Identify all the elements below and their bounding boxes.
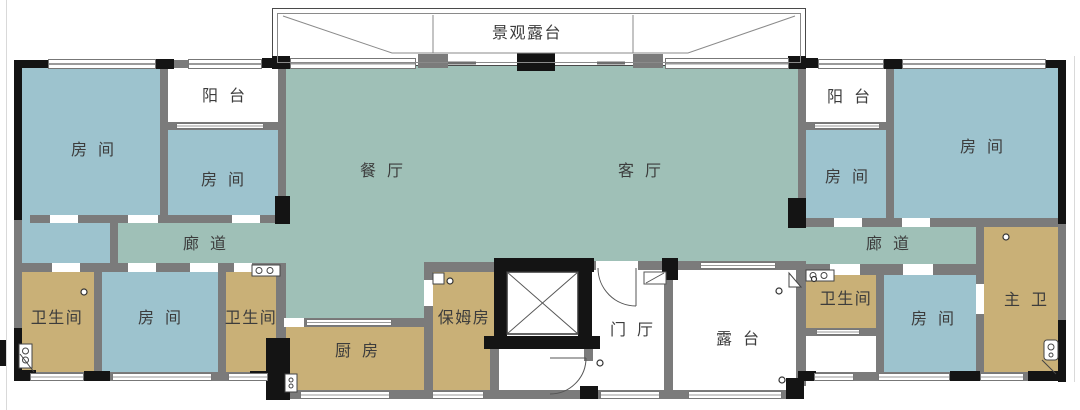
floor-plan: 景观露台 阳台 房间 房间 餐厅 客厅 廊道 卫生间 房间 卫生间 厨房 保姆房… — [0, 0, 1080, 410]
room-label-corridor-right: 廊道 — [866, 236, 920, 252]
room-label-bedroom-right-small: 房间 — [825, 169, 879, 185]
room-label-master-bathroom: 主卫 — [1004, 292, 1058, 308]
toilet-icon — [1042, 340, 1058, 374]
elevator-shaft-icon — [507, 272, 578, 334]
door-arc — [550, 358, 586, 394]
sink-icon — [252, 265, 280, 276]
sink-icon — [806, 270, 834, 281]
room-label-bathroom-left: 卫生间 — [31, 310, 84, 326]
room-label-balcony-left: 阳台 — [202, 88, 256, 104]
shower-corner-icon — [433, 273, 801, 287]
room-label-scenic-terrace: 景观露台 — [492, 25, 562, 41]
door-arc — [598, 268, 636, 306]
room-label-living: 客厅 — [618, 163, 672, 179]
room-label-bathroom-right: 卫生间 — [820, 291, 873, 307]
room-label-bedroom-left-small: 房间 — [201, 172, 255, 188]
kitchen-fixture-icon — [285, 374, 297, 392]
room-label-terrace: 露台 — [716, 331, 770, 347]
room-label-entry-hall: 门厅 — [610, 322, 664, 338]
room-label-bedroom-right-large: 房间 — [960, 139, 1014, 155]
room-label-bedroom-bottom-left: 房间 — [138, 310, 192, 326]
room-label-bathroom-left-2: 卫生间 — [225, 310, 278, 326]
entry-closet-icon — [644, 272, 666, 284]
room-label-corridor-left: 廊道 — [183, 236, 237, 252]
room-label-dining: 餐厅 — [360, 163, 414, 179]
room-label-nanny-room: 保姆房 — [438, 310, 491, 326]
plan-detail-overlay — [0, 0, 1080, 410]
room-label-balcony-right: 阳台 — [827, 89, 881, 105]
room-label-kitchen: 厨房 — [335, 343, 389, 359]
room-label-bedroom-left-large: 房间 — [71, 142, 125, 158]
room-label-bedroom-bottom-right: 房间 — [911, 311, 965, 327]
sink-icon — [19, 344, 34, 372]
